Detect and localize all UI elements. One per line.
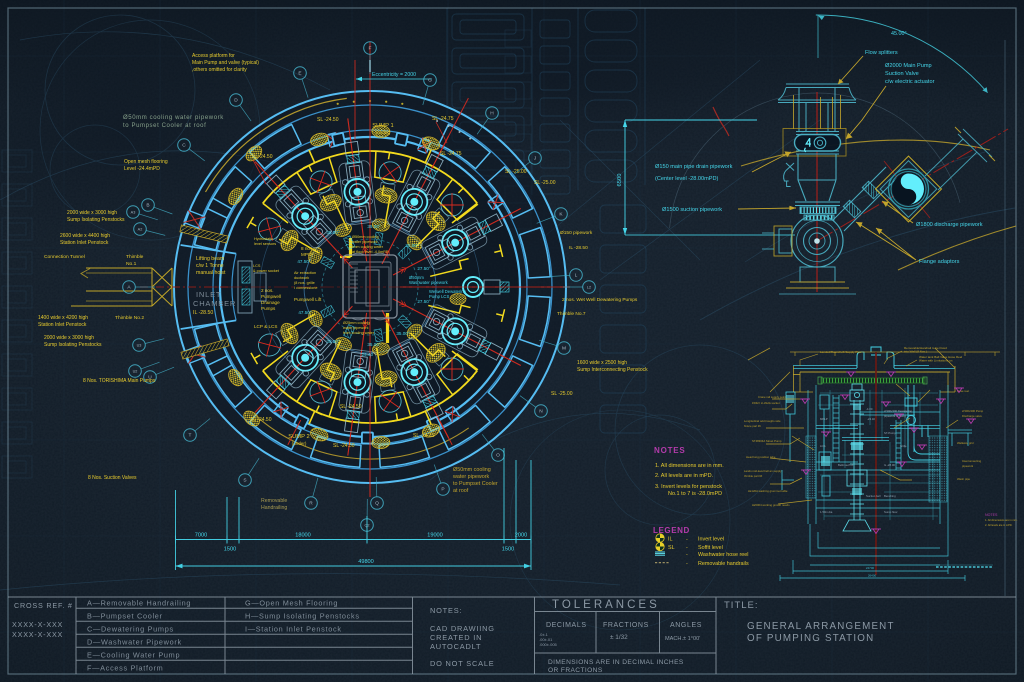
- svg-text:-: -: [686, 552, 688, 558]
- svg-text:ANGLES: ANGLES: [670, 622, 702, 629]
- svg-text:SL -24.75: SL -24.75: [440, 151, 462, 157]
- svg-text:MPLP: MPLP: [820, 417, 828, 421]
- svg-text:U2: U2: [133, 370, 138, 374]
- svg-text:49800: 49800: [358, 559, 374, 565]
- svg-text:GENERAL ARRANGEMENT: GENERAL ARRANGEMENT: [747, 621, 895, 632]
- svg-text:Ø150 pipework: Ø150 pipework: [560, 230, 593, 236]
- svg-text:Station Inlet Penstock: Station Inlet Penstock: [60, 240, 109, 246]
- svg-text:LCS: LCS: [253, 264, 261, 268]
- svg-text:Thimble: Thimble: [126, 254, 144, 260]
- svg-text:CAD DRAWIING: CAD DRAWIING: [430, 624, 495, 633]
- svg-text:fixture part lift: fixture part lift: [744, 424, 761, 428]
- svg-text:Q: Q: [375, 501, 379, 507]
- svg-text:I connessione: I connessione: [294, 286, 317, 290]
- svg-text:NOTES:: NOTES:: [430, 606, 462, 615]
- svg-text:SL -24.50: SL -24.50: [250, 417, 272, 423]
- svg-text:Open mesh flooring: Open mesh flooring: [124, 159, 168, 165]
- svg-text:DO NOT SCALE: DO NOT SCALE: [430, 659, 495, 668]
- svg-text:8 Nos. Suction Valves: 8 Nos. Suction Valves: [88, 475, 137, 481]
- svg-text:Benching: Benching: [884, 494, 896, 498]
- svg-text:Longitudinal odd troughs side: Longitudinal odd troughs side: [744, 419, 781, 423]
- svg-text:-24.40: -24.40: [360, 352, 373, 357]
- svg-text:Removable: Removable: [261, 498, 287, 504]
- svg-text:Drainage: Drainage: [261, 300, 280, 305]
- svg-text:SUMP 1: SUMP 1: [372, 123, 393, 129]
- svg-text:thimble part lift: thimble part lift: [744, 474, 762, 478]
- svg-text:7000: 7000: [195, 533, 207, 539]
- svg-text:Discharge valve: Discharge valve: [962, 414, 982, 418]
- svg-text:Landed/Round Lift Supply Pipe: Landed/Round Lift Supply Pipe: [820, 350, 862, 354]
- svg-text:M: M: [562, 346, 566, 352]
- svg-text:level sensors: level sensors: [254, 242, 276, 246]
- svg-text:into Wall (8 Nos.): into Wall (8 Nos.): [904, 350, 927, 354]
- svg-text:27.50°: 27.50°: [417, 299, 430, 304]
- svg-text:8 nos.: 8 nos.: [301, 246, 314, 251]
- svg-text:18000: 18000: [295, 533, 311, 539]
- svg-text:P: P: [441, 487, 444, 493]
- svg-text:ST48304A Street Pump: ST48304A Street Pump: [752, 439, 782, 443]
- svg-text:AUTOCADLT: AUTOCADLT: [430, 642, 481, 651]
- svg-text:CREATED IN: CREATED IN: [430, 633, 482, 642]
- svg-text:Station Inlet Penstock: Station Inlet Penstock: [38, 322, 87, 328]
- svg-text:35.00°: 35.00°: [367, 224, 380, 229]
- svg-text:45.00°: 45.00°: [891, 31, 907, 37]
- svg-text:2 nos. Wet Well Dewatering Pum: 2 nos. Wet Well Dewatering Pumps: [562, 297, 638, 303]
- svg-text:T: T: [189, 433, 192, 439]
- svg-text:A—Removable Handrailing: A—Removable Handrailing: [87, 599, 191, 608]
- svg-text:SL -25.00: SL -25.00: [534, 180, 556, 186]
- svg-text:Invert level: Invert level: [698, 537, 724, 543]
- svg-text:NOTES: NOTES: [985, 513, 998, 517]
- svg-text:B—Pumpset Cooler: B—Pumpset Cooler: [87, 612, 163, 621]
- svg-text:DIMENSIONS ARE IN DECIMAL: DIMENSIONS ARE IN DECIMAL INCHES: [548, 659, 684, 666]
- svg-text:Lifting beam: Lifting beam: [196, 256, 224, 262]
- svg-text:Access platform for: Access platform for: [192, 53, 235, 59]
- svg-text:19000: 19000: [427, 533, 443, 539]
- svg-text:Pumpwell: Pumpwell: [261, 294, 281, 299]
- svg-text:XXXX-X-XXX: XXXX-X-XXX: [12, 620, 63, 629]
- svg-text:c/w 1 Tonne: c/w 1 Tonne: [196, 263, 224, 269]
- svg-text:Interconnecting: Interconnecting: [962, 459, 982, 463]
- svg-text:water pipework: water pipework: [352, 240, 378, 244]
- svg-text:IL -28.50: IL -28.50: [193, 310, 213, 316]
- svg-text:47.50°: 47.50°: [298, 310, 311, 315]
- svg-text:-: -: [686, 561, 688, 567]
- svg-text:Washwater pipework: Washwater pipework: [409, 280, 449, 285]
- svg-text:2. All levels are in mPD.: 2. All levels are in mPD.: [985, 523, 1013, 527]
- svg-text:N: N: [539, 409, 543, 415]
- svg-text:1.50m dia: 1.50m dia: [820, 510, 833, 514]
- svg-text:MACH.± 1°00': MACH.± 1°00': [665, 636, 700, 642]
- svg-text:Washwater hose reel: Washwater hose reel: [698, 552, 748, 558]
- svg-text:A2: A2: [138, 228, 143, 232]
- svg-text:Ø150 main pipe drain pipework: Ø150 main pipe drain pipework: [655, 164, 733, 170]
- svg-text:Ø50mm cooling: Ø50mm cooling: [453, 467, 491, 473]
- svg-text:SUMP 2: SUMP 2: [288, 434, 309, 440]
- svg-text:FRACTIONS: FRACTIONS: [603, 622, 649, 629]
- svg-text:& power socket: & power socket: [253, 269, 280, 273]
- svg-text:LCP & LCS: LCP & LCS: [254, 324, 277, 329]
- svg-text:S: S: [243, 478, 246, 484]
- svg-text:1500: 1500: [224, 547, 236, 553]
- svg-text:Ø25mm cooling: Ø25mm cooling: [343, 321, 370, 325]
- svg-text:No.1 to 7 is -28.0mPD: No.1 to 7 is -28.0mPD: [668, 491, 722, 497]
- svg-text:2000 wide x 3000 high: 2000 wide x 3000 high: [67, 210, 117, 216]
- svg-text:at roof: at roof: [453, 488, 469, 494]
- svg-text:Ø1800 discharge pipework: Ø1800 discharge pipework: [916, 222, 983, 228]
- svg-text:27.50°: 27.50°: [417, 266, 430, 271]
- svg-text:ST-Pump: ST-Pump: [884, 431, 896, 435]
- svg-text:C—Dewatering Pumps: C—Dewatering Pumps: [87, 625, 174, 634]
- svg-text:2/300x300 Pump: 2/300x300 Pump: [962, 409, 984, 413]
- svg-text:R: R: [309, 501, 313, 507]
- svg-text:Pumps: Pumps: [261, 306, 276, 311]
- svg-text:LCS: LCS: [820, 444, 826, 448]
- svg-text:35.00°: 35.00°: [405, 243, 418, 248]
- svg-text:TOLERANCES: TOLERANCES: [552, 599, 660, 611]
- svg-text:Wash pipe: Wash pipe: [957, 477, 971, 481]
- svg-text:Head long position tube: Head long position tube: [746, 455, 776, 459]
- svg-text:pipework to rising: pipework to rising: [884, 414, 906, 418]
- svg-text:-24.40: -24.40: [867, 417, 875, 421]
- svg-text:Sump Isolating Penstocks: Sump Isolating Penstocks: [44, 342, 102, 348]
- svg-text:Suction bell: Suction bell: [866, 494, 881, 498]
- svg-text:2 nos.: 2 nos.: [261, 288, 274, 293]
- svg-text:U3: U3: [137, 344, 142, 348]
- svg-text:H—Sump Isolating Penstocks: H—Sump Isolating Penstocks: [245, 612, 360, 621]
- svg-text:26400: 26400: [868, 573, 877, 577]
- svg-text:35.00°: 35.00°: [367, 342, 380, 347]
- svg-text:Connection Tunnel: Connection Tunnel: [44, 254, 85, 260]
- svg-text:ductwork: ductwork: [294, 276, 309, 280]
- svg-text:.000±.005: .000±.005: [539, 642, 558, 647]
- svg-text:SL -24.50: SL -24.50: [317, 117, 339, 123]
- svg-text:Hydrostatic: Hydrostatic: [254, 237, 273, 241]
- svg-text:1. All dimensions are in mm.: 1. All dimensions are in mm.: [985, 518, 1018, 522]
- svg-text:pipework: pipework: [962, 464, 974, 468]
- svg-text:D: D: [234, 98, 238, 104]
- svg-text:Flow splitters: Flow splitters: [865, 50, 898, 56]
- svg-text:Suction Valve: Suction Valve: [885, 71, 919, 77]
- svg-text:1. All dimensions are in mm.: 1. All dimensions are in mm.: [655, 463, 724, 469]
- svg-text:CHAMBER: CHAMBER: [193, 299, 236, 308]
- svg-text:B: B: [146, 203, 149, 209]
- svg-text:35.00°: 35.00°: [396, 331, 409, 336]
- svg-text:(8 nos. grille: (8 nos. grille: [294, 281, 315, 285]
- svg-text:F—Access Platform: F—Access Platform: [87, 664, 163, 673]
- svg-text:,others omitted for clarity: ,others omitted for clarity: [192, 67, 247, 73]
- svg-text:Ø50mm cooling water pipewor: Ø50mm cooling water pipework: [123, 115, 224, 121]
- svg-text:Sump Isolating Penstocks: Sump Isolating Penstocks: [67, 217, 125, 223]
- svg-text:L: L: [575, 273, 578, 279]
- svg-text:2000 wide x 3000 high: 2000 wide x 3000 high: [44, 335, 94, 341]
- svg-text:CROSS REF. #: CROSS REF. #: [14, 601, 73, 610]
- svg-text:Handrailing: Handrailing: [261, 505, 287, 511]
- svg-text:2000: 2000: [515, 533, 527, 539]
- svg-text:F: F: [369, 46, 372, 52]
- svg-text:35.00°: 35.00°: [326, 339, 339, 344]
- svg-text:DECIMALS: DECIMALS: [546, 622, 587, 629]
- svg-text:Removable handrails: Removable handrails: [698, 561, 749, 567]
- svg-text:Pump LCS: Pump LCS: [429, 294, 449, 299]
- svg-text:A3: A3: [131, 211, 136, 215]
- svg-text:Pumpwell Lift: Pumpwell Lift: [294, 297, 322, 302]
- svg-text:D—Washwater Pipework: D—Washwater Pipework: [87, 638, 182, 647]
- svg-text:XXXX-X-XXX: XXXX-X-XXX: [12, 630, 63, 639]
- svg-text:Ø50mm cooling: Ø50mm cooling: [352, 235, 379, 239]
- svg-text:H: H: [490, 111, 494, 117]
- svg-text:G—Open Mesh Flooring: G—Open Mesh Flooring: [245, 599, 338, 608]
- svg-text:35.00°: 35.00°: [326, 230, 339, 235]
- svg-text:from cooling water: from cooling water: [343, 331, 375, 335]
- svg-text:SL -25.00: SL -25.00: [505, 169, 527, 175]
- svg-text:NOTES: NOTES: [654, 446, 686, 455]
- svg-text:Eccentricity = 2000: Eccentricity = 2000: [372, 72, 416, 78]
- svg-text:(under): (under): [376, 130, 391, 135]
- svg-text:Level -24.4mPD: Level -24.4mPD: [124, 166, 160, 172]
- svg-text:Thimble No.7: Thimble No.7: [557, 311, 586, 317]
- svg-text:Crane rail supply point: Crane rail supply point: [758, 395, 786, 399]
- svg-text:Soffit level: Soffit level: [698, 545, 723, 551]
- svg-text:SL: SL: [668, 545, 675, 551]
- svg-text:SL -24.50: SL -24.50: [333, 443, 355, 449]
- svg-text:3. Invert levels for pensto: 3. Invert levels for penstock: [655, 484, 722, 490]
- svg-text:1500: 1500: [502, 547, 514, 553]
- svg-text:INLET: INLET: [196, 290, 221, 299]
- svg-text:water pipework: water pipework: [452, 474, 490, 480]
- svg-text:to Pumpset Cooler: to Pumpset Cooler: [453, 481, 498, 487]
- svg-text:SL -24.50: SL -24.50: [251, 154, 273, 160]
- svg-text:E—Cooling Water Pump: E—Cooling Water Pump: [87, 651, 180, 660]
- svg-text:Grille: Grille: [900, 444, 907, 448]
- svg-text:Ø2000 Main Pump: Ø2000 Main Pump: [885, 63, 932, 69]
- svg-text:at floor level -4.0mPD: at floor level -4.0mPD: [352, 250, 389, 254]
- svg-text:Bellmouth cl: Bellmouth cl: [838, 463, 854, 467]
- svg-text:I—Station Inlet Penstock: I—Station Inlet Penstock: [245, 625, 342, 634]
- svg-text:(Center level -28.00mPD): (Center level -28.00mPD): [655, 176, 719, 182]
- svg-text:150kV LI-Wells socket: 150kV LI-Wells socket: [752, 401, 780, 405]
- svg-text:No.1: No.1: [126, 261, 137, 267]
- svg-text:O: O: [496, 453, 500, 459]
- svg-text:to Pumpset Cooler at roof: to Pumpset Cooler at roof: [123, 123, 206, 129]
- svg-text:C: C: [182, 143, 186, 149]
- svg-text:8 Nos. TORISHIMA Main Pumps: 8 Nos. TORISHIMA Main Pumps: [83, 378, 156, 384]
- svg-text:2600 wide x 4400 high: 2600 wide x 4400 high: [60, 233, 110, 239]
- svg-text:MPLP: MPLP: [301, 252, 314, 257]
- svg-text:± 1/32: ± 1/32: [610, 634, 628, 641]
- svg-text:SL -24.50: SL -24.50: [340, 404, 362, 410]
- svg-text:G: G: [428, 78, 432, 84]
- svg-text:Thimble No.2: Thimble No.2: [115, 315, 144, 321]
- svg-text:from cooling water: from cooling water: [352, 245, 384, 249]
- svg-text:Main Pump and valve (typical): Main Pump and valve (typical): [192, 60, 259, 66]
- svg-text:Walkway grid: Walkway grid: [957, 441, 974, 445]
- svg-text:Sump Interconnecting Penstock: Sump Interconnecting Penstock: [577, 367, 648, 373]
- svg-text:Lands mid-level bell an supply: Lands mid-level bell an supply: [744, 469, 782, 473]
- svg-text:water pipework: water pipework: [343, 326, 369, 330]
- svg-text:2/300x300 Dewatering: 2/300x300 Dewatering: [884, 409, 912, 413]
- svg-text:L2: L2: [587, 286, 591, 290]
- svg-text:Air extraction: Air extraction: [294, 271, 316, 275]
- svg-text:IL -28.50: IL -28.50: [569, 245, 588, 251]
- svg-text:-: -: [686, 537, 688, 543]
- svg-text:TITLE:: TITLE:: [724, 600, 759, 611]
- svg-text:SL -25.00: SL -25.00: [551, 391, 573, 397]
- svg-text:6500: 6500: [617, 174, 623, 187]
- svg-text:manual hoist: manual hoist: [196, 270, 226, 276]
- svg-text:IL: IL: [668, 537, 673, 543]
- svg-text:LE5004 working growth needs: LE5004 working growth needs: [752, 503, 790, 507]
- svg-text:Ø1500 suction pipework: Ø1500 suction pipework: [662, 207, 722, 213]
- svg-text:24700: 24700: [866, 566, 875, 570]
- svg-text:(under): (under): [292, 441, 307, 446]
- svg-text:47.50°: 47.50°: [297, 259, 310, 264]
- svg-text:1600 wide x 2500 high: 1600 wide x 2500 high: [577, 360, 627, 366]
- svg-text:SL -24.75: SL -24.75: [413, 433, 435, 439]
- svg-text:SL -24.75: SL -24.75: [432, 116, 454, 122]
- svg-text:-4.00: -4.00: [866, 407, 873, 411]
- svg-text:-: -: [686, 545, 688, 551]
- svg-text:OR FRACTIONS: OR FRACTIONS: [548, 667, 603, 674]
- svg-text:1400 wide x 4200 high: 1400 wide x 4200 high: [38, 315, 88, 321]
- svg-text:Sump floor: Sump floor: [884, 510, 898, 514]
- svg-text:E: E: [298, 71, 301, 77]
- svg-text:Flange adaptors: Flange adaptors: [919, 259, 960, 265]
- svg-text:2. All levels are in mPD.: 2. All levels are in mPD.: [655, 473, 714, 479]
- svg-text:IL -28.00: IL -28.00: [884, 463, 895, 467]
- svg-text:c/w electric actuator: c/w electric actuator: [885, 79, 935, 85]
- svg-text:LE120A washing grommet table: LE120A washing grommet table: [748, 489, 788, 493]
- svg-text:OF PUMPING STATION: OF PUMPING STATION: [747, 633, 874, 644]
